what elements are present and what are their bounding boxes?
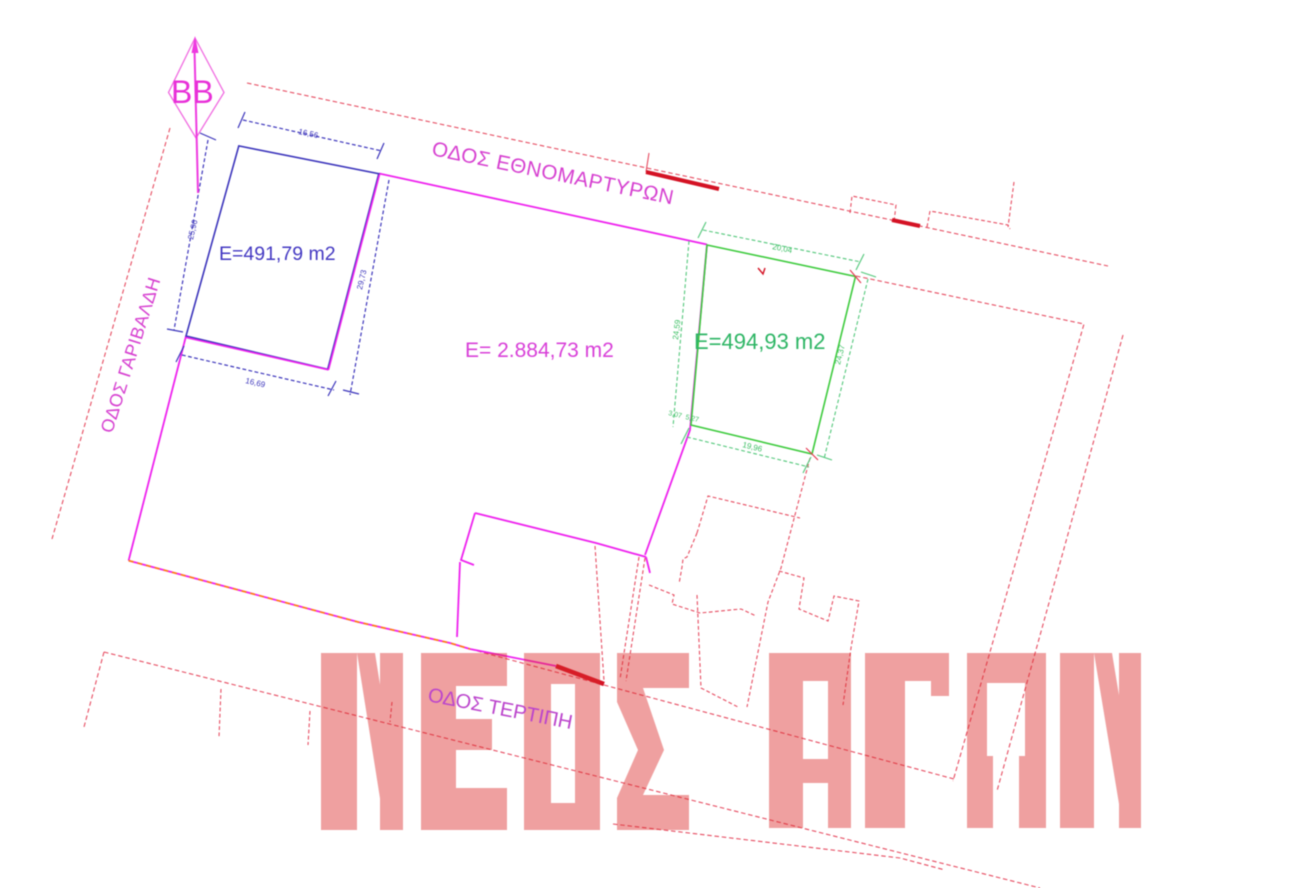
svg-text:E=494,93 m2: E=494,93 m2 xyxy=(694,329,825,354)
svg-text:E= 2.884,73 m2: E= 2.884,73 m2 xyxy=(465,339,614,362)
svg-text:E=491,79 m2: E=491,79 m2 xyxy=(219,243,336,265)
svg-text:BB: BB xyxy=(171,74,214,110)
